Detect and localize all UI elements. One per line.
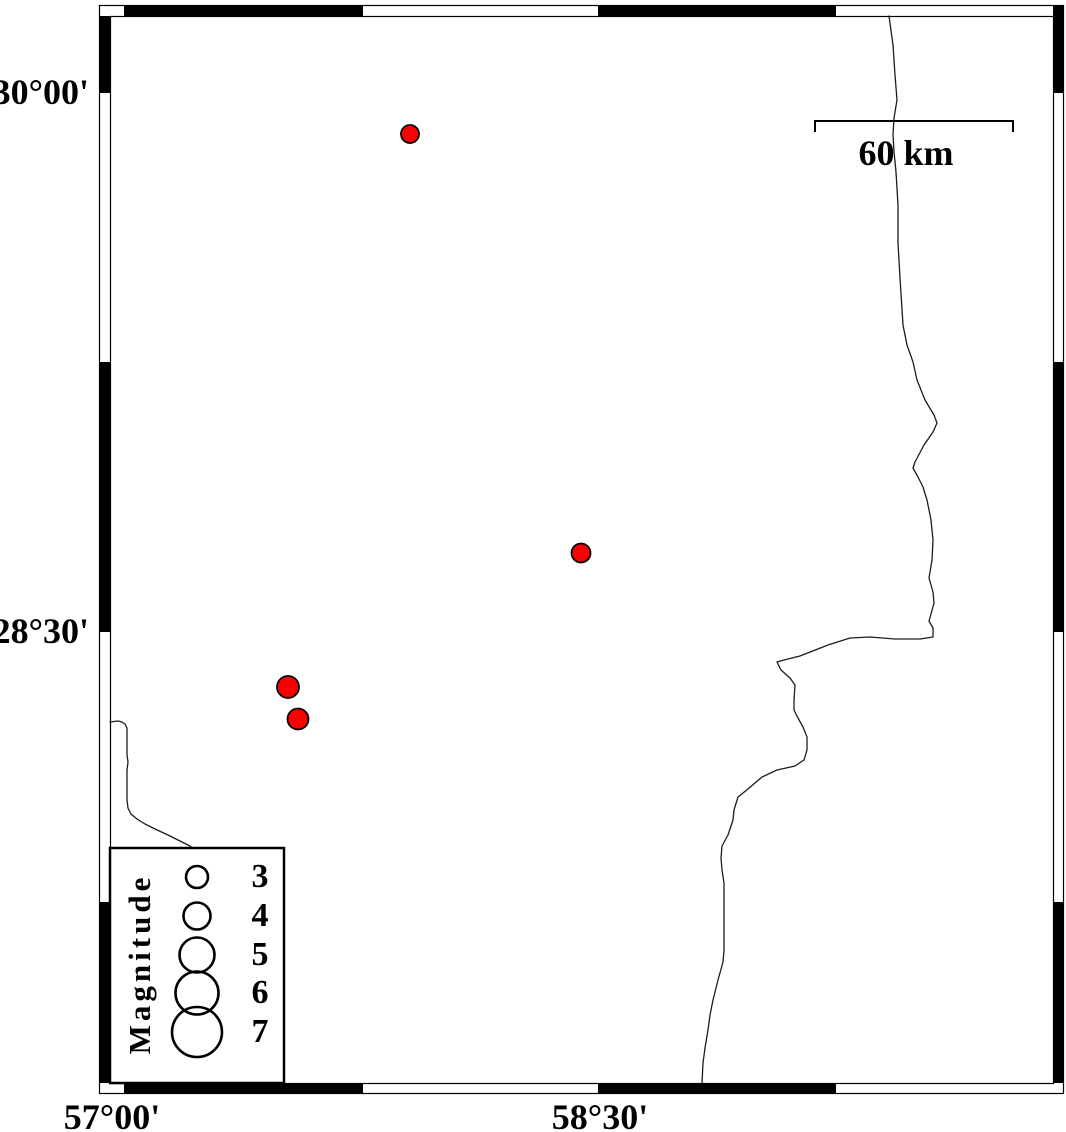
frame-black-segment-bottom (124, 1083, 362, 1093)
frame-black-segment-left (99, 902, 110, 1083)
latitude-label-28-30: 28°30' (0, 609, 89, 653)
frame-black-segment-left (99, 362, 110, 631)
frame-black-segment-right (1053, 902, 1063, 1083)
frame-black-segment-right (1053, 5, 1063, 92)
legend-label-mag-5: 5 (238, 935, 282, 975)
legend-label-mag-6: 6 (238, 973, 282, 1013)
earthquake-marker (288, 709, 309, 730)
frame-black-segment-top (124, 5, 362, 16)
earthquake-marker (401, 125, 419, 143)
longitude-label-57-00: 57°00' (12, 1095, 212, 1132)
legend-label-mag-7: 7 (238, 1012, 282, 1052)
frame-black-segment-left (99, 16, 110, 92)
scale-bar-label: 60 km (806, 131, 1006, 175)
earthquake-marker (572, 544, 591, 563)
earthquake-marker (277, 676, 299, 698)
frame-black-segment-top (598, 5, 835, 16)
legend-title: Magnitude (123, 859, 157, 1069)
river-line-southwest (110, 721, 193, 849)
seismicity-map-figure: 30°00' 28°30' 57°00' 58°30' 60 km Magnit… (0, 0, 1066, 1132)
legend-label-mag-4: 4 (238, 896, 282, 936)
latitude-label-30-00: 30°00' (0, 70, 89, 114)
frame-black-segment-bottom (598, 1083, 835, 1093)
river-line-main (702, 16, 937, 1083)
frame-black-segment-right (1053, 362, 1063, 631)
longitude-label-58-30: 58°30' (500, 1095, 700, 1132)
legend-label-mag-3: 3 (238, 857, 282, 897)
